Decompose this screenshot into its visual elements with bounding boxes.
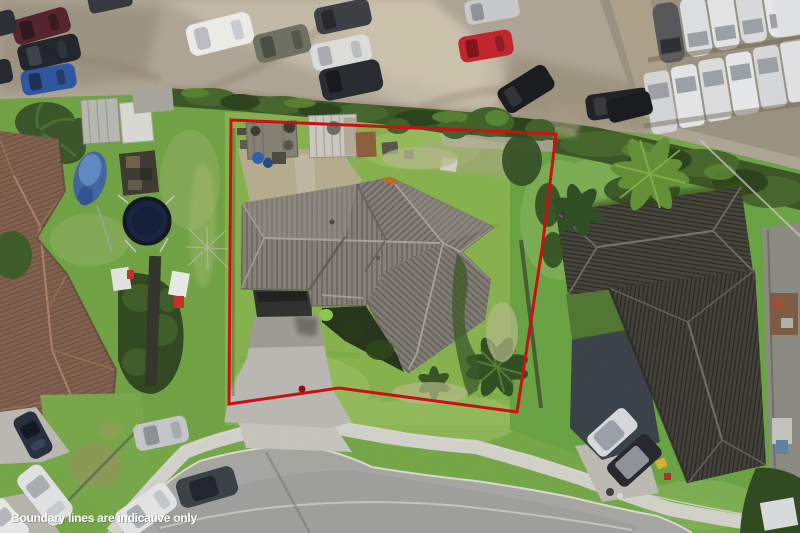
svg-text:Boundary lines are indicative: Boundary lines are indicative only: [11, 511, 197, 525]
